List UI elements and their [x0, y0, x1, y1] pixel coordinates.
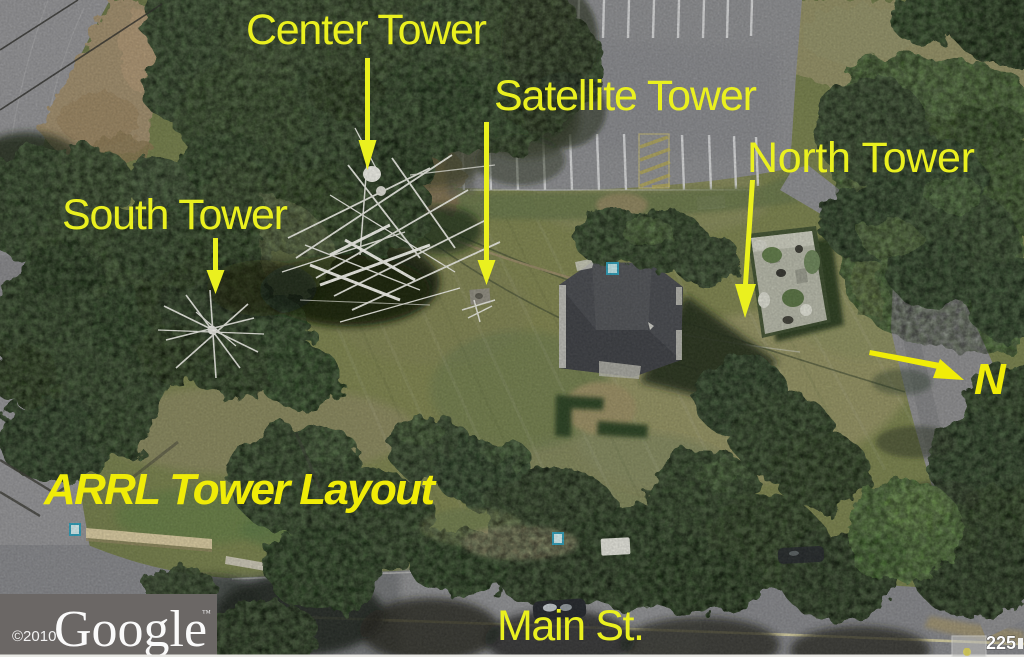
svg-text:South Tower: South Tower [62, 191, 288, 239]
svg-text:Satellite Tower: Satellite Tower [494, 72, 757, 120]
svg-text:225: 225 [986, 633, 1016, 653]
svg-text:©2010: ©2010 [12, 628, 56, 645]
svg-text:ARRL Tower Layout: ARRL Tower Layout [43, 465, 437, 514]
svg-text:North Tower: North Tower [747, 134, 975, 182]
svg-text:Google: Google [54, 601, 207, 657]
svg-text:Main St.: Main St. [497, 602, 645, 650]
svg-text:N: N [974, 355, 1007, 404]
svg-text:™: ™ [202, 608, 211, 618]
svg-text:Center Tower: Center Tower [246, 6, 487, 54]
